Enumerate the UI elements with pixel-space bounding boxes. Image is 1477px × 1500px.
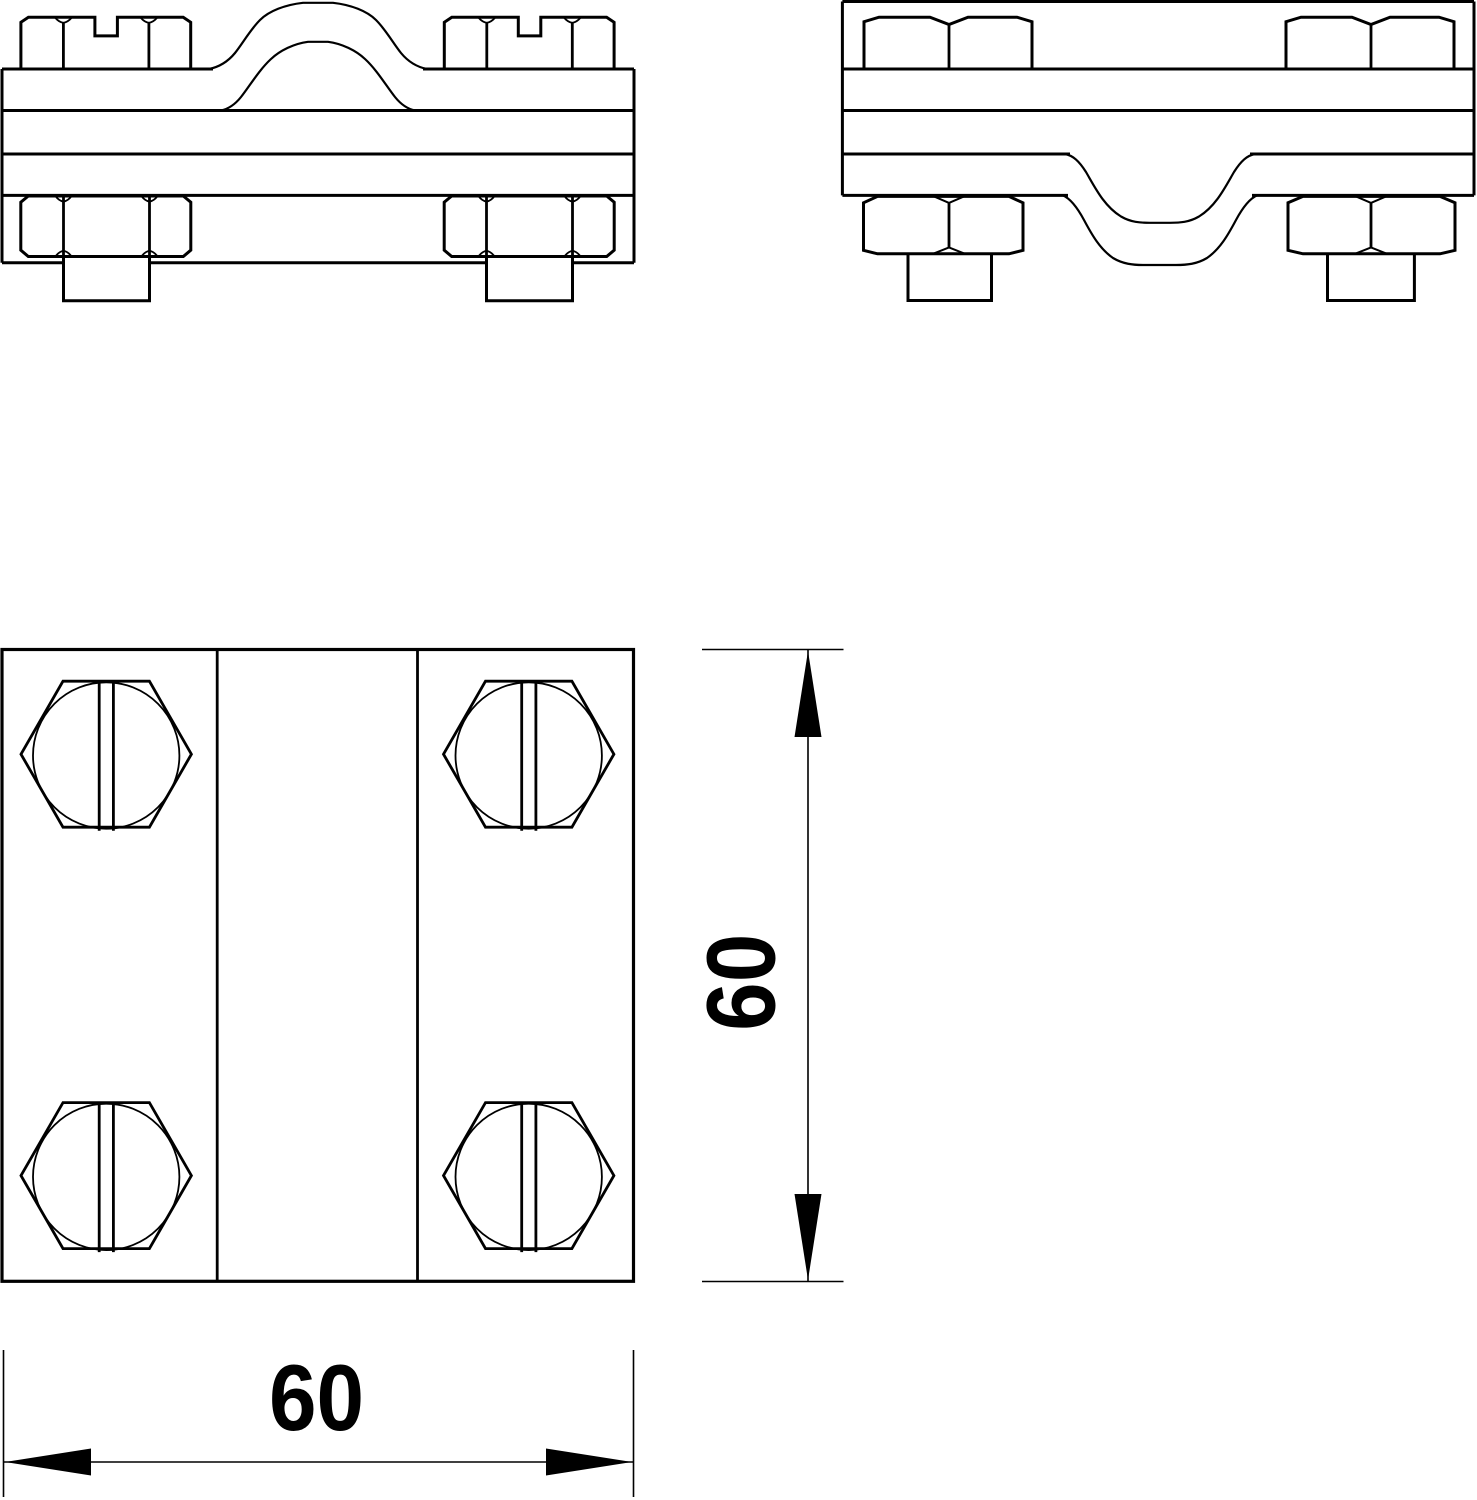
svg-text:60: 60 bbox=[686, 934, 795, 1031]
svg-text:60: 60 bbox=[269, 1346, 364, 1451]
